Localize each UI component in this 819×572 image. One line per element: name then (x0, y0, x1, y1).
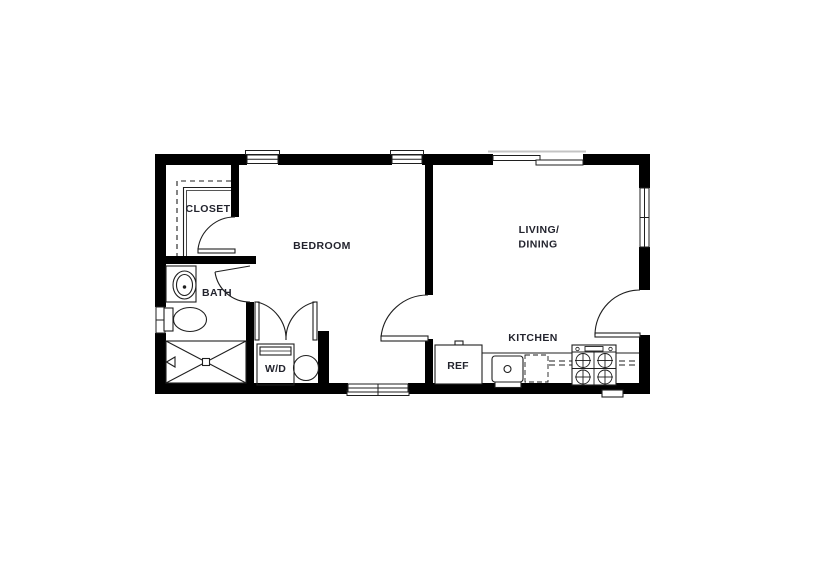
door-closet-leaf (198, 249, 235, 253)
wall-laundry-east (318, 331, 329, 394)
wall-top-2 (278, 154, 392, 165)
wall-right-2 (639, 247, 650, 290)
toilet (164, 308, 207, 332)
range-stove (572, 345, 616, 385)
kitchen-label: KITCHEN (508, 332, 557, 344)
door-laundry-right-arc (286, 302, 315, 340)
dishwasher-dashed (525, 355, 548, 382)
door-closet-arc (198, 217, 235, 249)
water-heater-circle (294, 356, 319, 381)
wall-closet-east (231, 154, 239, 217)
living-label-line1: LIVING/ (519, 224, 560, 236)
wall-bath-east (246, 302, 254, 394)
closet-label: CLOSET (186, 203, 231, 215)
shower (166, 341, 246, 383)
shower-valve-triangle (167, 357, 176, 367)
window-right-living (640, 188, 649, 247)
wall-left-1 (155, 154, 166, 307)
wall-partition-upper (425, 154, 433, 295)
door-entry-arc (595, 290, 640, 335)
door-bedroom-arc (381, 295, 428, 337)
room-labels: CLOSET BEDROOM BATH LIVING/ DINING KITCH… (186, 203, 560, 375)
kitchen-sink (492, 356, 523, 388)
bedroom-label: BEDROOM (293, 240, 351, 252)
shower-drain (203, 359, 210, 366)
vanity-sink (166, 266, 196, 302)
refrigerator-label: REF (447, 360, 469, 372)
floor-plan-canvas: CLOSET BEDROOM BATH LIVING/ DINING KITCH… (0, 0, 819, 572)
door-laundry-double (255, 302, 317, 340)
door-bedroom (381, 295, 428, 341)
door-entry-leaf (595, 333, 640, 337)
wall-right-1 (639, 154, 650, 188)
window-top-living-slider (488, 152, 586, 166)
door-laundry-right-leaf (313, 302, 317, 340)
bath-label: BATH (202, 287, 232, 299)
door-bath-leaf (215, 266, 250, 272)
wall-partition-lower (425, 339, 433, 394)
living-label-line2: DINING (518, 239, 557, 251)
window-top-bedroom-1 (246, 151, 280, 164)
wall-left-2 (155, 333, 166, 394)
door-entry (595, 290, 640, 337)
floor-plan-drawing: CLOSET BEDROOM BATH LIVING/ DINING KITCH… (0, 0, 819, 572)
door-closet (198, 217, 235, 253)
door-laundry-left-leaf (255, 302, 259, 340)
window-top-bedroom-2 (391, 151, 424, 164)
window-bottom-bedroom (347, 384, 409, 396)
door-laundry-left-arc (257, 302, 286, 340)
door-bedroom-leaf (381, 336, 428, 341)
wall-right-3 (639, 335, 650, 394)
wall-bath-north (155, 256, 256, 264)
exterior-step (602, 390, 623, 397)
doors (198, 217, 640, 341)
washer-dryer-label: W/D (265, 363, 286, 375)
